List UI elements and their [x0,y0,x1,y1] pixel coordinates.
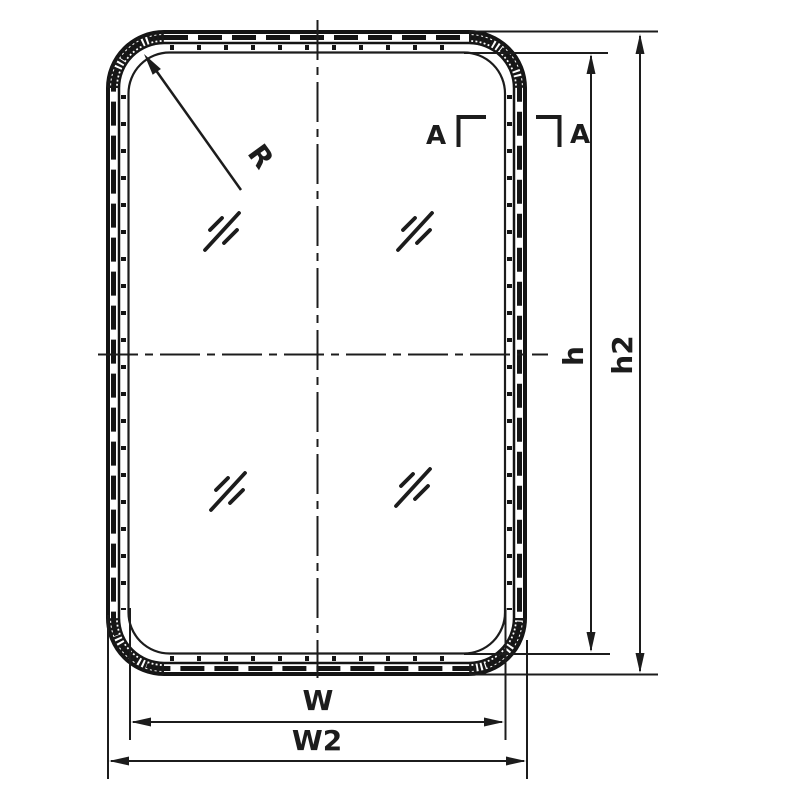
dim-w-arrow-left [131,718,151,727]
dim-w2-arrow-left [109,757,129,766]
glass-symbol-bottom-left [211,473,245,510]
dim-h-arrow-up [587,54,596,74]
window-frame-drawing: R A A h h2 [0,0,800,800]
dim-h-arrow-down [587,632,596,652]
glass-symbol-top-right [398,213,432,250]
frame-corner-hatch-bottom-left [114,618,165,669]
dim-w2-arrow-right [506,757,526,766]
dim-h2-arrow-up [636,34,645,54]
radius-label: R [241,138,280,175]
section-label-right: A [570,120,590,150]
dim-w2-label: W2 [292,724,342,757]
dim-w-arrow-right [484,718,504,727]
dim-h2-arrow-down [636,653,645,673]
dim-h2-label: h2 [606,335,639,374]
section-cut-bracket-left [459,117,487,147]
glass-symbol-bottom-right [396,469,430,506]
section-cut-bracket-right [536,117,560,147]
dim-h-label: h [557,346,590,366]
radius-leader-line [155,69,241,190]
glass-symbol-top-left [205,213,239,250]
dim-w-label: W [303,684,334,717]
section-label-left: A [426,121,446,151]
technical-drawing-canvas: R A A h h2 [0,0,800,800]
radius-callout: R [144,54,280,190]
